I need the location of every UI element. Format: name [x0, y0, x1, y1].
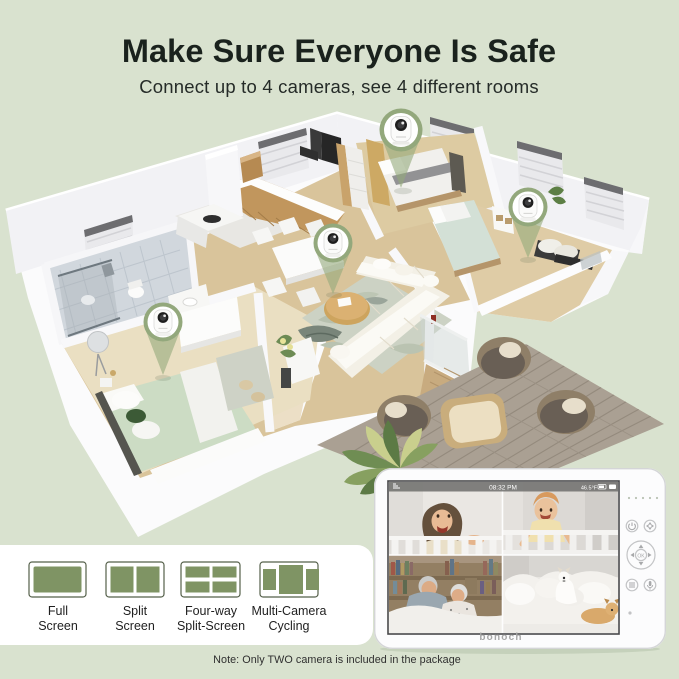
svg-text:Full: Full [48, 604, 68, 618]
svg-text:08:32 PM: 08:32 PM [489, 485, 517, 492]
svg-text:bonoch: bonoch [479, 632, 522, 643]
svg-text:Connect up to 4 cameras, see 4: Connect up to 4 cameras, see 4 different… [139, 76, 539, 97]
svg-text:Cycling: Cycling [269, 619, 310, 633]
svg-text:Split: Split [123, 604, 148, 618]
svg-text:Screen: Screen [115, 619, 155, 633]
svg-text:46.5°F: 46.5°F [581, 486, 598, 492]
svg-text:Split-Screen: Split-Screen [177, 619, 245, 633]
svg-text:Make Sure Everyone Is Safe: Make Sure Everyone Is Safe [122, 33, 556, 69]
svg-text:OK: OK [637, 554, 645, 560]
svg-text:Note: Only TWO camera is inclu: Note: Only TWO camera is included in the… [213, 654, 461, 666]
svg-text:Multi-Camera: Multi-Camera [251, 604, 326, 618]
svg-text:Four-way: Four-way [185, 604, 238, 618]
svg-text:Screen: Screen [38, 619, 78, 633]
